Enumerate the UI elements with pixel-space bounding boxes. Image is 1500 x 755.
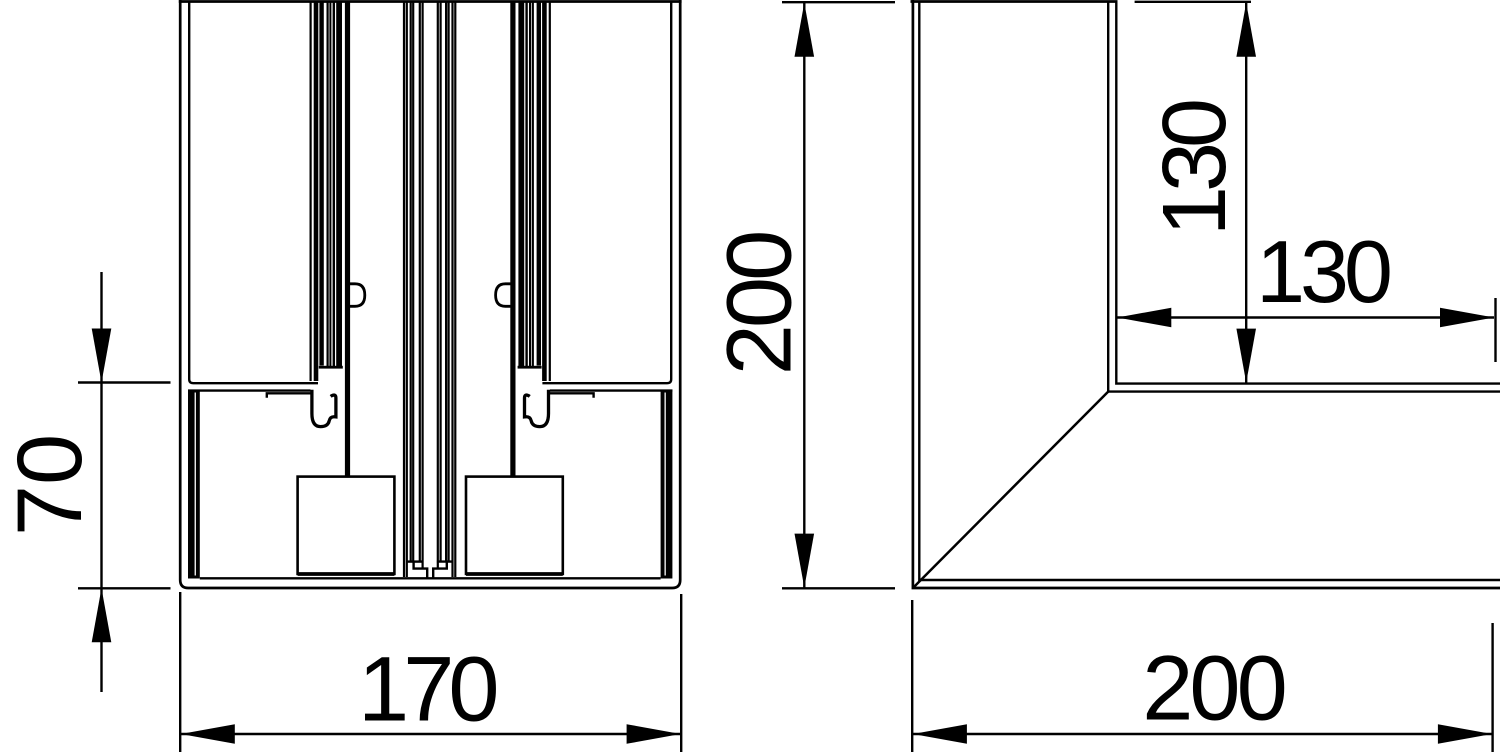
svg-text:70: 70 (0, 434, 101, 536)
svg-text:200: 200 (1142, 638, 1284, 740)
svg-text:200: 200 (709, 233, 811, 375)
svg-text:130: 130 (1256, 222, 1390, 321)
svg-text:170: 170 (358, 639, 496, 741)
svg-text:130: 130 (1145, 101, 1245, 236)
